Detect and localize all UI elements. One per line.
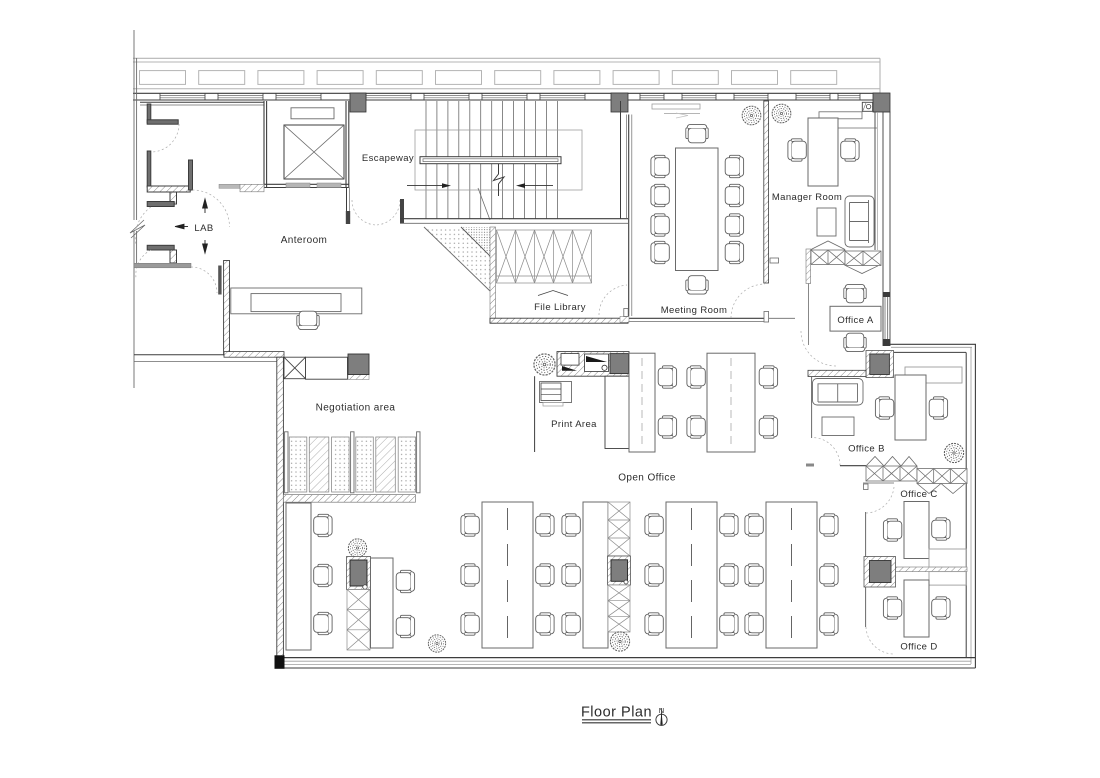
svg-text:Anteroom: Anteroom	[281, 235, 328, 246]
svg-text:Floor Plan: Floor Plan	[581, 705, 652, 721]
svg-text:Open Office: Open Office	[618, 473, 676, 484]
svg-text:Office D: Office D	[900, 642, 937, 653]
svg-text:Office C: Office C	[900, 489, 937, 500]
svg-text:Print Area: Print Area	[551, 419, 597, 430]
svg-text:Escapeway: Escapeway	[362, 153, 414, 164]
svg-text:Negotiation area: Negotiation area	[316, 403, 396, 414]
svg-text:LAB: LAB	[194, 223, 213, 234]
svg-text:File Library: File Library	[534, 302, 586, 313]
svg-text:Meeting Room: Meeting Room	[661, 305, 728, 316]
svg-text:Manager Room: Manager Room	[772, 192, 842, 203]
svg-text:Office B: Office B	[848, 444, 885, 455]
svg-text:Office A: Office A	[837, 315, 874, 326]
